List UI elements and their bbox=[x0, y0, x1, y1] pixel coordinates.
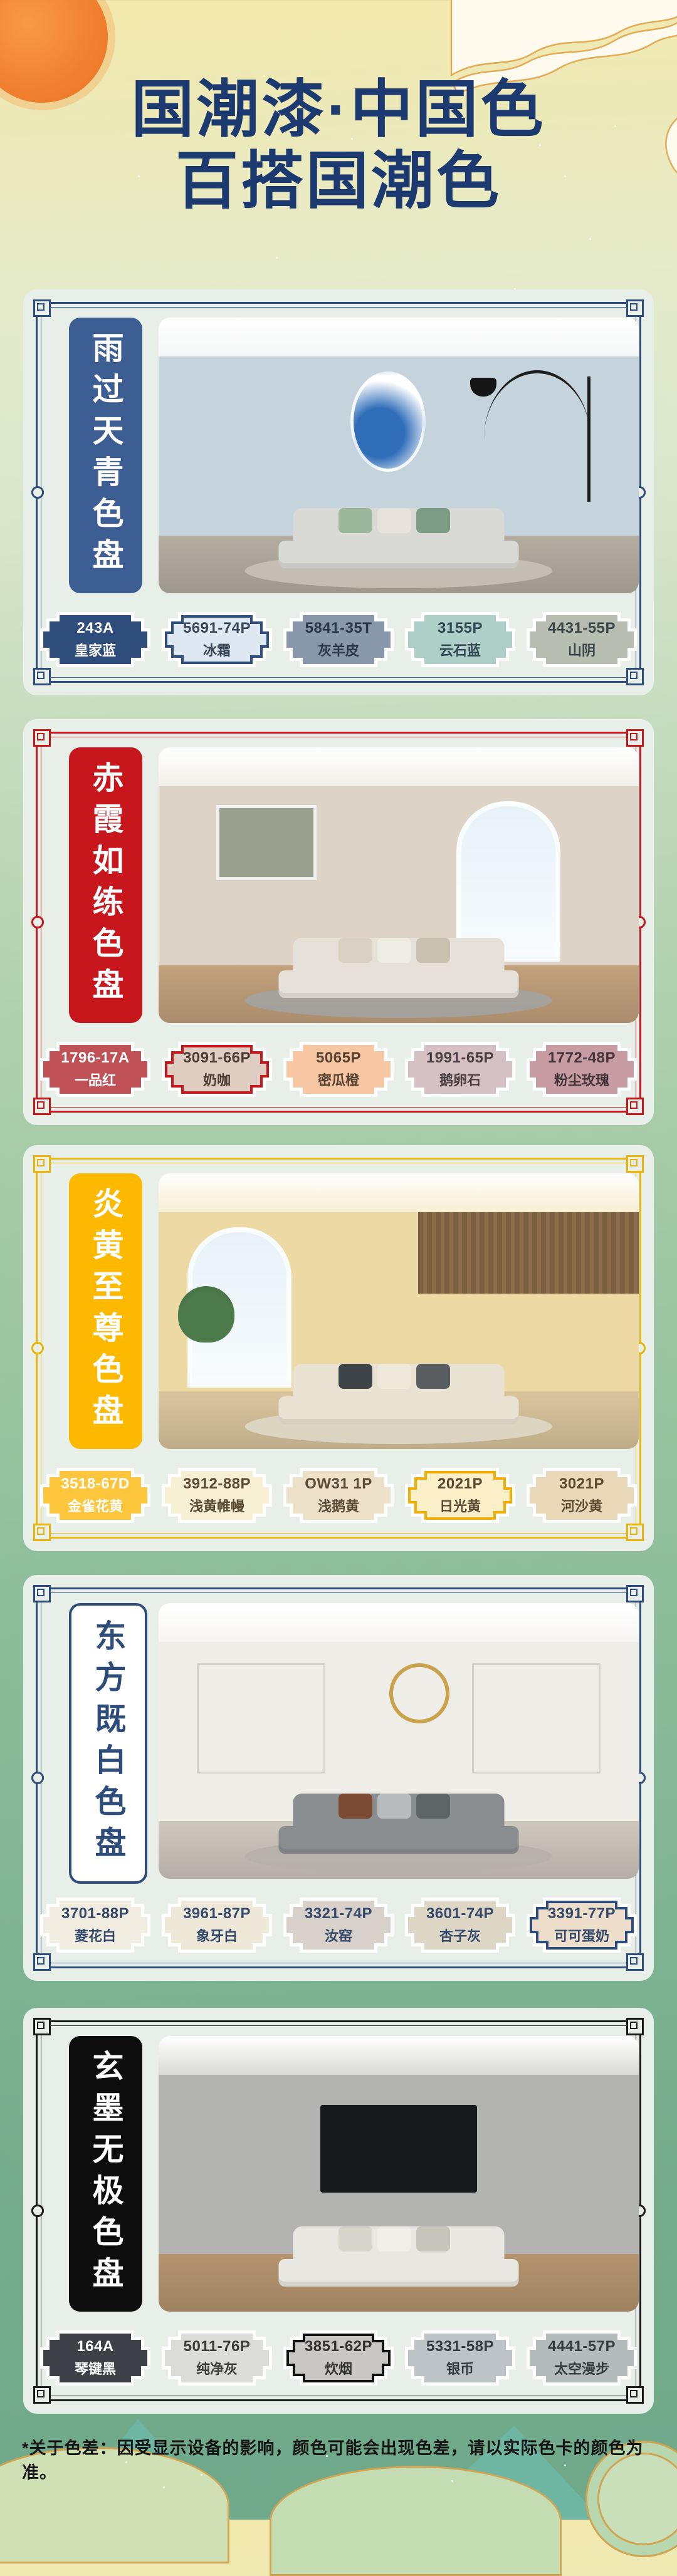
swatch-name: 纯净灰 bbox=[196, 2358, 238, 2378]
swatch-name: 河沙黄 bbox=[561, 1495, 602, 1515]
frame-corner-icon bbox=[626, 2386, 644, 2404]
swatch-code: 3091-66P bbox=[183, 1049, 251, 1067]
swatch-code: 3701-88P bbox=[61, 1905, 129, 1923]
swatch-code: 5331-58P bbox=[426, 2338, 494, 2355]
room-photo-element bbox=[377, 1364, 411, 1389]
palette-card-3: 炎黄至尊色盘 3518-67D 金雀花黄 3912-88P 浅黄帷幔 OW31 … bbox=[23, 1145, 654, 1551]
color-swatch: 4441-57P 太空漫步 bbox=[527, 2330, 637, 2386]
room-photo-element bbox=[197, 1663, 325, 1774]
color-swatch: 3155P 云石蓝 bbox=[405, 612, 515, 667]
room-photo-element bbox=[338, 1364, 372, 1389]
swatch-name: 可可蛋奶 bbox=[554, 1925, 609, 1945]
swatch-code: 3601-74P bbox=[426, 1905, 494, 1923]
swatch-fill: 3912-88P 浅黄帷幔 bbox=[165, 1471, 269, 1520]
room-photo-element bbox=[338, 508, 372, 533]
swatch-name: 灰羊皮 bbox=[318, 640, 359, 660]
swatch-fill: 2021P 日光黄 bbox=[411, 1473, 510, 1517]
room-photo-element bbox=[279, 1826, 519, 1854]
room-photo-element bbox=[279, 970, 519, 998]
room-photo-element bbox=[418, 1212, 639, 1294]
room-photo-element bbox=[320, 2105, 477, 2193]
room-photo-element bbox=[389, 1663, 449, 1723]
poster-title: 国潮漆·中国色 百搭国潮色 bbox=[0, 74, 677, 217]
swatch-fill: 5331-58P 银币 bbox=[408, 2334, 512, 2382]
swatch-name: 菱花白 bbox=[75, 1925, 116, 1945]
frame-corner-icon bbox=[626, 668, 644, 685]
room-photo-element bbox=[377, 508, 411, 533]
swatch-code: 1796-17A bbox=[61, 1049, 129, 1067]
room-photo-element bbox=[279, 1396, 519, 1424]
palette-card-5: 玄墨无极色盘 164A 琴键黑 5011-76P 纯净灰 3851-62P 炊烟… bbox=[23, 2008, 654, 2414]
swatch-fill: 4431-55P 山阴 bbox=[530, 615, 634, 664]
frame-circle-ornament bbox=[31, 2205, 44, 2217]
color-swatch: 3518-67D 金雀花黄 bbox=[40, 1468, 150, 1523]
color-swatch: 3851-62P 炊烟 bbox=[283, 2330, 394, 2386]
color-swatch: 3021P 河沙黄 bbox=[527, 1468, 637, 1523]
room-photo-element bbox=[159, 1603, 639, 1642]
room-photo-element bbox=[350, 371, 426, 472]
poster-title-line1: 国潮漆·中国色 bbox=[0, 74, 677, 145]
swatch-fill: 243A 皇家蓝 bbox=[43, 615, 147, 664]
room-photo-element bbox=[338, 938, 372, 963]
swatch-name: 浅黄帷幔 bbox=[189, 1495, 244, 1515]
swatch-code: 3155P bbox=[438, 620, 483, 637]
room-photo-element bbox=[587, 377, 590, 502]
frame-corner-icon bbox=[626, 729, 644, 747]
swatch-name: 金雀花黄 bbox=[68, 1495, 123, 1515]
color-swatch: 164A 琴键黑 bbox=[40, 2330, 150, 2386]
frame-circle-ornament bbox=[31, 916, 44, 928]
room-photo-element bbox=[416, 2226, 450, 2251]
swatch-fill: 5065P 密瓜橙 bbox=[286, 1045, 391, 1094]
room-photo-element bbox=[416, 1364, 450, 1389]
palette-name-text: 赤霞如练色盘 bbox=[90, 761, 122, 1009]
palette-name-plaque: 炎黄至尊色盘 bbox=[69, 1173, 142, 1449]
swatch-fill: 1991-65P 鹅卵石 bbox=[408, 1045, 512, 1094]
swatch-code: 5011-76P bbox=[184, 2338, 251, 2355]
swatch-name: 象牙白 bbox=[196, 1925, 238, 1945]
room-photo-element bbox=[377, 938, 411, 963]
room-photo-element bbox=[377, 2226, 411, 2251]
swatch-name: 汝窑 bbox=[325, 1925, 352, 1945]
palette-name-text: 炎黄至尊色盘 bbox=[90, 1187, 122, 1435]
swatch-fill: 3091-66P 奶咖 bbox=[167, 1047, 266, 1091]
swatch-code: 3912-88P bbox=[183, 1475, 251, 1493]
swatch-fill: 3021P 河沙黄 bbox=[530, 1471, 634, 1520]
swatch-fill: 164A 琴键黑 bbox=[43, 2334, 147, 2382]
color-swatch: 1772-48P 粉尘玫瑰 bbox=[527, 1042, 637, 1097]
room-photo-element bbox=[159, 747, 639, 786]
frame-corner-icon bbox=[33, 1524, 51, 1541]
swatch-code: 3391-77P bbox=[548, 1905, 616, 1923]
swatch-code: 3851-62P bbox=[305, 2338, 372, 2355]
room-photo-element bbox=[377, 1794, 411, 1819]
room-photo-element bbox=[416, 1794, 450, 1819]
swatch-name: 浅鹅黄 bbox=[318, 1495, 359, 1515]
palette-name-text: 雨过天青色盘 bbox=[90, 331, 122, 579]
swatch-code: 5065P bbox=[316, 1049, 361, 1067]
swatch-code: 1772-48P bbox=[548, 1049, 616, 1067]
frame-corner-icon bbox=[626, 299, 644, 317]
color-swatch: 3321-74P 汝窑 bbox=[283, 1898, 394, 1953]
frame-corner-icon bbox=[33, 1098, 51, 1115]
swatch-code: 5841-35T bbox=[305, 620, 372, 637]
swatch-name: 银币 bbox=[446, 2358, 474, 2378]
frame-circle-ornament bbox=[31, 486, 44, 499]
swatch-name: 皇家蓝 bbox=[75, 640, 116, 660]
room-photo bbox=[159, 1173, 639, 1449]
swatch-name: 炊烟 bbox=[325, 2358, 352, 2378]
swatch-fill: 1796-17A 一品红 bbox=[43, 1045, 147, 1094]
frame-corner-icon bbox=[626, 1155, 644, 1173]
swatch-name: 粉尘玫瑰 bbox=[554, 1069, 609, 1089]
frame-corner-icon bbox=[626, 1585, 644, 1602]
color-swatch: 3701-88P 菱花白 bbox=[40, 1898, 150, 1953]
color-swatch: 5065P 密瓜橙 bbox=[283, 1042, 394, 1097]
swatch-row: 243A 皇家蓝 5691-74P 冰霜 5841-35T 灰羊皮 3155P … bbox=[23, 612, 654, 667]
frame-corner-icon bbox=[33, 668, 51, 685]
palette-name-plaque: 赤霞如练色盘 bbox=[69, 747, 142, 1023]
poster-page: { "page": { "title_line1": "国潮漆·中国色", "t… bbox=[0, 0, 677, 2520]
room-photo-element bbox=[338, 1794, 372, 1819]
swatch-name: 山阴 bbox=[568, 640, 596, 660]
color-swatch: 5011-76P 纯净灰 bbox=[162, 2330, 272, 2386]
swatch-fill: 5841-35T 灰羊皮 bbox=[286, 615, 391, 664]
swatch-fill: 3961-87P 象牙白 bbox=[165, 1901, 269, 1950]
room-photo-element bbox=[338, 2226, 372, 2251]
frame-corner-icon bbox=[626, 1098, 644, 1115]
frame-circle-ornament bbox=[31, 1772, 44, 1784]
frame-corner-icon bbox=[33, 2018, 51, 2035]
frame-corner-icon bbox=[626, 2018, 644, 2035]
swatch-name: 冰霜 bbox=[203, 640, 231, 660]
swatch-name: 琴键黑 bbox=[75, 2358, 116, 2378]
swatch-fill: 4441-57P 太空漫步 bbox=[530, 2334, 634, 2382]
swatch-fill: 5011-76P 纯净灰 bbox=[165, 2334, 269, 2382]
room-photo-element bbox=[279, 541, 519, 568]
frame-corner-icon bbox=[33, 2386, 51, 2404]
swatch-row: 1796-17A 一品红 3091-66P 奶咖 5065P 密瓜橙 1991-… bbox=[23, 1042, 654, 1097]
frame-corner-icon bbox=[33, 299, 51, 317]
swatch-code: 2021P bbox=[438, 1475, 483, 1493]
swatch-fill: 3701-88P 菱花白 bbox=[43, 1901, 147, 1950]
room-photo-element bbox=[216, 805, 317, 880]
frame-corner-icon bbox=[33, 1155, 51, 1173]
color-disclaimer-note: *关于色差：因受显示设备的影响，颜色可能会出现色差，请以实际色卡的颜色为准。 bbox=[22, 2434, 677, 2483]
swatch-fill: 1772-48P 粉尘玫瑰 bbox=[530, 1045, 634, 1094]
palette-name-text: 东方既白色盘 bbox=[93, 1619, 124, 1867]
swatch-code: 3021P bbox=[559, 1475, 604, 1493]
swatch-fill: 5691-74P 冰霜 bbox=[167, 618, 266, 662]
room-photo bbox=[159, 1603, 639, 1879]
color-swatch: 3961-87P 象牙白 bbox=[162, 1898, 272, 1953]
frame-corner-icon bbox=[33, 729, 51, 747]
room-photo-element bbox=[416, 508, 450, 533]
frame-corner-icon bbox=[626, 1524, 644, 1541]
swatch-name: 杏子灰 bbox=[439, 1925, 481, 1945]
swatch-name: 密瓜橙 bbox=[318, 1069, 359, 1089]
color-swatch: 5691-74P 冰霜 bbox=[162, 612, 272, 667]
room-photo-element bbox=[159, 2036, 639, 2075]
palette-card-1: 雨过天青色盘 243A 皇家蓝 5691-74P 冰霜 5841-35T 灰羊皮… bbox=[23, 289, 654, 695]
color-swatch: 3091-66P 奶咖 bbox=[162, 1042, 272, 1097]
color-swatch: OW31 1P 浅鹅黄 bbox=[283, 1468, 394, 1523]
swatch-code: 3518-67D bbox=[61, 1475, 129, 1493]
room-photo-element bbox=[178, 1286, 234, 1343]
palette-name-plaque: 雨过天青色盘 bbox=[69, 318, 142, 593]
swatch-name: 云石蓝 bbox=[439, 640, 481, 660]
room-photo-element bbox=[279, 2259, 519, 2287]
color-swatch: 2021P 日光黄 bbox=[405, 1468, 515, 1523]
swatch-fill: 3601-74P 杏子灰 bbox=[408, 1901, 512, 1950]
color-swatch: 4431-55P 山阴 bbox=[527, 612, 637, 667]
room-photo-element bbox=[472, 1663, 601, 1774]
swatch-code: 3321-74P bbox=[305, 1905, 372, 1923]
room-photo-element bbox=[416, 938, 450, 963]
swatch-code: 5691-74P bbox=[183, 620, 251, 637]
palette-name-text: 玄墨无极色盘 bbox=[90, 2050, 122, 2298]
color-swatch: 1796-17A 一品红 bbox=[40, 1042, 150, 1097]
swatch-fill: 3155P 云石蓝 bbox=[408, 615, 512, 664]
swatch-code: 4431-55P bbox=[548, 620, 616, 637]
color-swatch: 5841-35T 灰羊皮 bbox=[283, 612, 394, 667]
swatch-fill: OW31 1P 浅鹅黄 bbox=[286, 1471, 391, 1520]
palette-card-4: 东方既白色盘 3701-88P 菱花白 3961-87P 象牙白 3321-74… bbox=[23, 1575, 654, 1981]
swatch-name: 鹅卵石 bbox=[439, 1069, 481, 1089]
swatch-code: 3961-87P bbox=[183, 1905, 251, 1923]
swatch-name: 太空漫步 bbox=[554, 2358, 609, 2378]
swatch-fill: 3391-77P 可可蛋奶 bbox=[532, 1903, 631, 1947]
swatch-code: 243A bbox=[76, 620, 113, 637]
swatch-fill: 3518-67D 金雀花黄 bbox=[43, 1471, 147, 1520]
swatch-code: 1991-65P bbox=[426, 1049, 494, 1067]
color-swatch: 1991-65P 鹅卵石 bbox=[405, 1042, 515, 1097]
room-photo-element bbox=[159, 1173, 639, 1212]
swatch-name: 日光黄 bbox=[439, 1495, 481, 1515]
color-swatch: 5331-58P 银币 bbox=[405, 2330, 515, 2386]
frame-corner-icon bbox=[626, 1953, 644, 1971]
swatch-row: 3518-67D 金雀花黄 3912-88P 浅黄帷幔 OW31 1P 浅鹅黄 … bbox=[23, 1468, 654, 1523]
swatch-name: 一品红 bbox=[75, 1069, 116, 1089]
swatch-code: 164A bbox=[76, 2338, 113, 2355]
swatch-fill: 3321-74P 汝窑 bbox=[286, 1901, 391, 1950]
room-photo bbox=[159, 747, 639, 1023]
swatch-row: 164A 琴键黑 5011-76P 纯净灰 3851-62P 炊烟 5331-5… bbox=[23, 2330, 654, 2386]
frame-circle-ornament bbox=[31, 1342, 44, 1354]
color-swatch: 243A 皇家蓝 bbox=[40, 612, 150, 667]
swatch-fill: 3851-62P 炊烟 bbox=[289, 2336, 388, 2380]
palette-name-plaque: 东方既白色盘 bbox=[69, 1603, 147, 1884]
room-photo bbox=[159, 318, 639, 593]
palette-name-plaque: 玄墨无极色盘 bbox=[69, 2036, 142, 2312]
room-photo-element bbox=[159, 318, 639, 356]
swatch-code: 4441-57P bbox=[548, 2338, 616, 2355]
swatch-row: 3701-88P 菱花白 3961-87P 象牙白 3321-74P 汝窑 36… bbox=[23, 1898, 654, 1953]
frame-corner-icon bbox=[33, 1953, 51, 1971]
poster-title-line2: 百搭国潮色 bbox=[0, 145, 677, 217]
palette-card-2: 赤霞如练色盘 1796-17A 一品红 3091-66P 奶咖 5065P 密瓜… bbox=[23, 719, 654, 1125]
color-swatch: 3391-77P 可可蛋奶 bbox=[527, 1898, 637, 1953]
color-swatch: 3912-88P 浅黄帷幔 bbox=[162, 1468, 272, 1523]
room-photo bbox=[159, 2036, 639, 2312]
frame-corner-icon bbox=[33, 1585, 51, 1602]
swatch-name: 奶咖 bbox=[203, 1069, 231, 1089]
swatch-code: OW31 1P bbox=[305, 1475, 372, 1493]
color-swatch: 3601-74P 杏子灰 bbox=[405, 1898, 515, 1953]
